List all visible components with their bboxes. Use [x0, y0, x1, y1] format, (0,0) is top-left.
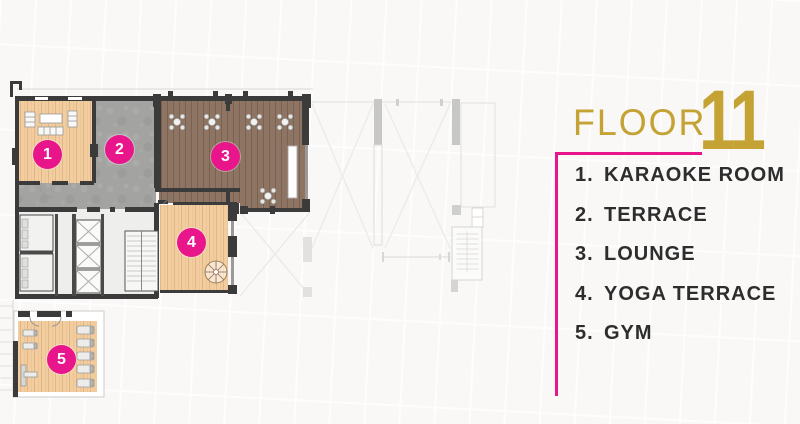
- legend-item-label: TERRACE: [604, 204, 708, 227]
- legend-item-number: 2.: [575, 204, 604, 227]
- legend-item-number: 3.: [575, 243, 604, 266]
- compass-rose-icon: [205, 261, 227, 283]
- room-badge-terrace-number: 2: [115, 141, 124, 159]
- legend-item-karaoke-room: 1. KARAOKE ROOM: [575, 156, 785, 196]
- room-badge-lounge[interactable]: 3: [211, 142, 240, 171]
- room-badge-gym[interactable]: 5: [47, 345, 76, 374]
- room-badge-lounge-number: 3: [221, 148, 230, 166]
- legend-frame-left-line: [555, 152, 558, 396]
- room-badge-terrace[interactable]: 2: [105, 135, 134, 164]
- legend-item-gym: 5. GYM: [575, 314, 785, 354]
- legend-item-number: 4.: [575, 283, 604, 306]
- stairs: [125, 231, 158, 291]
- legend-list: 1. KARAOKE ROOM 2. TERRACE 3. LOUNGE 4. …: [575, 156, 785, 354]
- floor-title-label: FLOOR: [573, 104, 706, 141]
- room-badge-yoga-terrace-number: 4: [187, 234, 196, 252]
- legend-item-number: 5.: [575, 322, 604, 345]
- room-badge-karaoke-number: 1: [43, 146, 52, 164]
- legend-item-label: KARAOKE ROOM: [604, 164, 785, 187]
- legend-item-label: YOGA TERRACE: [604, 283, 776, 306]
- legend-item-label: LOUNGE: [604, 243, 696, 266]
- floor-title-number: 11: [699, 86, 764, 154]
- floor-plan-svg: [0, 0, 560, 424]
- room-badge-gym-number: 5: [57, 351, 66, 369]
- floor-plan-page: 1 2 3 4 5 FLOOR 11 1. KARAOKE ROOM 2. TE…: [0, 0, 800, 424]
- lounge-counter: [288, 146, 297, 198]
- room-badge-karaoke[interactable]: 1: [33, 140, 62, 169]
- legend-item-lounge: 3. LOUNGE: [575, 235, 785, 275]
- legend-frame-top-line: [555, 152, 702, 155]
- elevator-shafts: [76, 220, 101, 293]
- legend-item-terrace: 2. TERRACE: [575, 196, 785, 236]
- legend-item-label: GYM: [604, 322, 653, 345]
- legend-item-number: 1.: [575, 164, 604, 187]
- legend-item-yoga-terrace: 4. YOGA TERRACE: [575, 275, 785, 315]
- room-badge-yoga-terrace[interactable]: 4: [177, 228, 206, 257]
